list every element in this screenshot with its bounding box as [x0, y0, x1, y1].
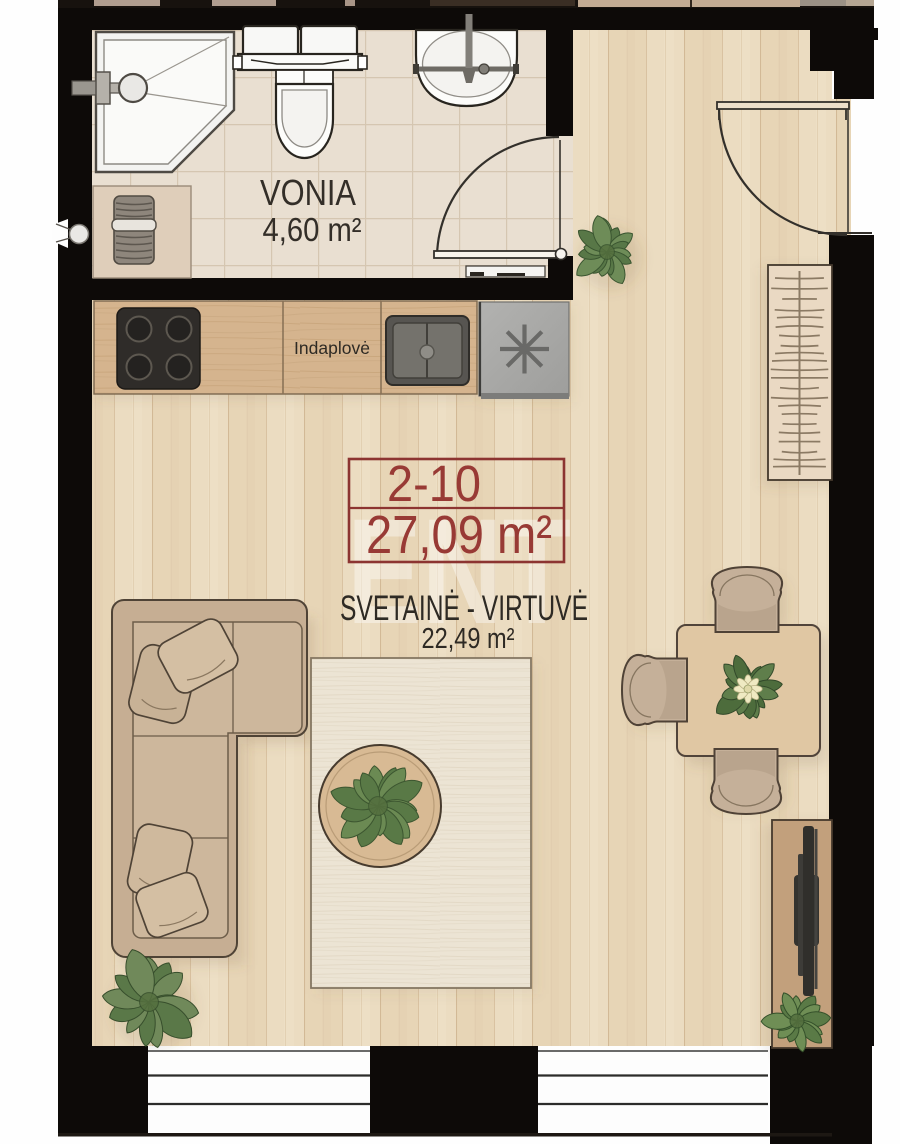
- svg-text:VONIA: VONIA: [260, 172, 356, 213]
- svg-text:22,49 m²: 22,49 m²: [422, 623, 515, 655]
- svg-text:Indaplovė: Indaplovė: [294, 338, 370, 358]
- svg-text:4,60 m²: 4,60 m²: [263, 211, 362, 248]
- svg-text:2-10: 2-10: [387, 455, 481, 512]
- svg-text:27,09 m²: 27,09 m²: [366, 505, 552, 565]
